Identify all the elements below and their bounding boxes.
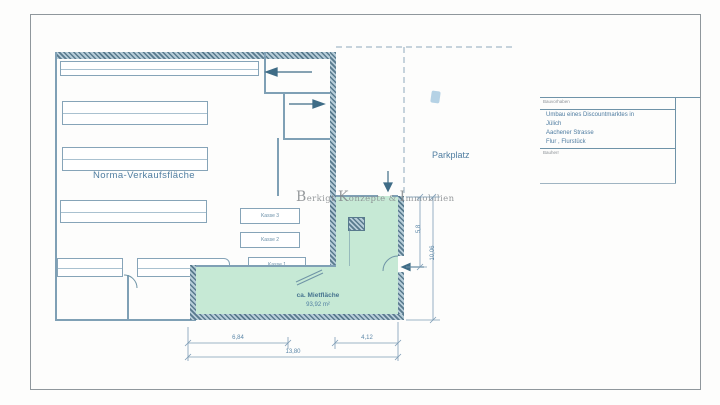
scanned-floor-plan-sheet: Kasse 3 Kasse 2 Kasse 1 BerkigtKonzepte&…	[0, 0, 720, 405]
titleblock-right-edge	[675, 97, 676, 183]
door-swing-arcs	[124, 256, 398, 288]
titleblock-section-label-top: Bauvorhaben	[543, 99, 570, 104]
titleblock-top-line	[540, 97, 700, 98]
plan-marker-icon	[430, 90, 441, 103]
rental-area-label: ca. Mietfläche	[282, 292, 354, 299]
parking-label: Parkplatz	[432, 150, 470, 160]
titleblock-section-label-bottom: Bauherr	[543, 150, 559, 155]
bottom-dimension-lines	[185, 322, 401, 361]
titleblock-divider-1	[540, 109, 675, 110]
titleblock-project-line-2: Jülich	[546, 121, 561, 127]
dimension-right-outer: 10,06	[430, 239, 436, 267]
titleblock-project-line-4: Flur , Flurstück	[546, 139, 586, 145]
titleblock-bottom-line	[540, 183, 676, 184]
titleblock-divider-2	[540, 148, 675, 149]
boundary-dashed-lines	[336, 47, 516, 195]
rental-entry-arrow-icon	[384, 171, 392, 191]
dimension-bottom-left: 6,84	[215, 335, 261, 341]
entrance-arrow-icon	[289, 100, 324, 108]
dimension-bottom-right: 4,12	[344, 335, 390, 341]
sales-area-label: Norma-Verkaufsfläche	[93, 170, 195, 181]
titleblock-project-line-1: Umbau eines Discountmarktes in	[546, 112, 634, 118]
dimension-bottom-total: 13,80	[270, 349, 316, 355]
titleblock-project-line-3: Aachener Strasse	[546, 130, 594, 136]
plan-linework	[0, 0, 720, 405]
exit-arrow-icon	[266, 68, 312, 76]
rental-area-value: 93,92 m²	[282, 302, 354, 308]
dimension-right-inner: 5,8	[416, 215, 422, 243]
diagonal-partition	[296, 270, 323, 285]
